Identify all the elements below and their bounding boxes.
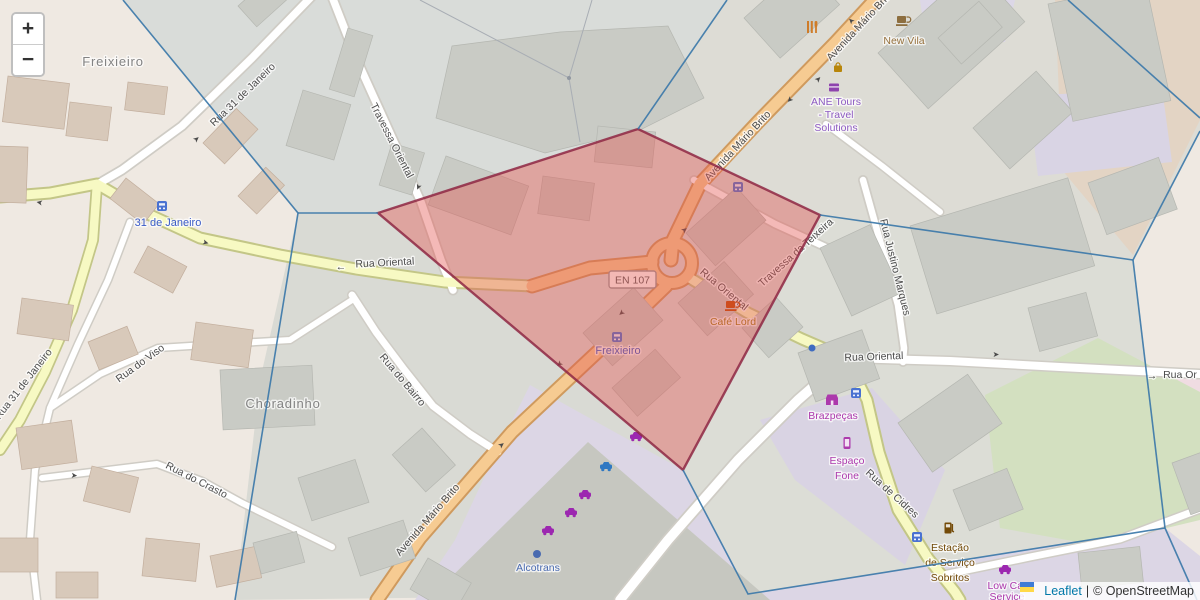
poi-label-estacao: Sobritos [931, 572, 970, 584]
poi-label-espaco-fone: Fone [835, 470, 859, 482]
building [66, 102, 112, 141]
building [191, 322, 254, 368]
building [17, 298, 74, 341]
zoom-out-button[interactable]: − [13, 45, 43, 75]
attribution-divider: | [1086, 584, 1089, 598]
phone-icon [844, 437, 851, 449]
poi-label-estacao: Estação [931, 542, 969, 554]
zoom-control: + − [11, 12, 45, 77]
office-dot-icon [533, 550, 541, 558]
poi-dot-icon [809, 345, 816, 352]
poi-label-brazpecas: Brazpeças [808, 410, 858, 422]
zoom-in-button[interactable]: + [13, 14, 43, 45]
oneway-arrow-icon: ← [336, 261, 347, 273]
poi-label-espaco-fone: Espaço [829, 455, 864, 467]
transit-stop-label: 31 de Janeiro [135, 217, 202, 229]
poi-label-ane-tours: ANE Tours [811, 96, 861, 108]
osm-attribution: © OpenStreetMap [1093, 584, 1194, 598]
poi-label-alcotrans: Alcotrans [516, 562, 560, 574]
poi-label-ane-tours: Solutions [814, 122, 857, 134]
place-label-choradinho: Choradinho [245, 396, 320, 411]
map-canvas[interactable]: Rua 31 de Janeiro Rua 31 de Janeiro Trav… [0, 0, 1200, 600]
building [16, 420, 77, 469]
building [0, 538, 38, 572]
leaflet-link[interactable]: Leaflet [1044, 584, 1082, 598]
building [56, 572, 98, 598]
place-label-freixieiro: Freixieiro [82, 54, 143, 69]
street-label: Rua Or [1163, 369, 1197, 381]
suitcase-icon [829, 84, 839, 92]
restaurant-icon [807, 21, 817, 33]
bus-stop-icon [851, 388, 861, 398]
building [2, 76, 69, 129]
shop-icon [826, 395, 838, 406]
attribution-bar: Leaflet | © OpenStreetMap [1020, 582, 1200, 600]
building [142, 538, 200, 581]
oneway-arrow-icon: ➤ [993, 350, 1000, 359]
pylon-dot [567, 76, 571, 80]
poi-label-new-vila: New Vila [883, 35, 924, 47]
bus-stop-icon [157, 201, 167, 211]
ukraine-flag-icon [1026, 586, 1040, 596]
building [125, 82, 168, 115]
street-label: Rua Oriental [844, 350, 903, 364]
bus-stop-icon [912, 532, 922, 542]
oneway-arrow-icon: → [1147, 370, 1158, 382]
poi-label-ane-tours: - Travel [818, 109, 853, 121]
oneway-arrow-icon: ➤ [70, 471, 78, 481]
map-tiles: Rua 31 de Janeiro Rua 31 de Janeiro Trav… [0, 0, 1200, 600]
fuel-pump-icon [945, 523, 954, 534]
building [0, 146, 28, 203]
